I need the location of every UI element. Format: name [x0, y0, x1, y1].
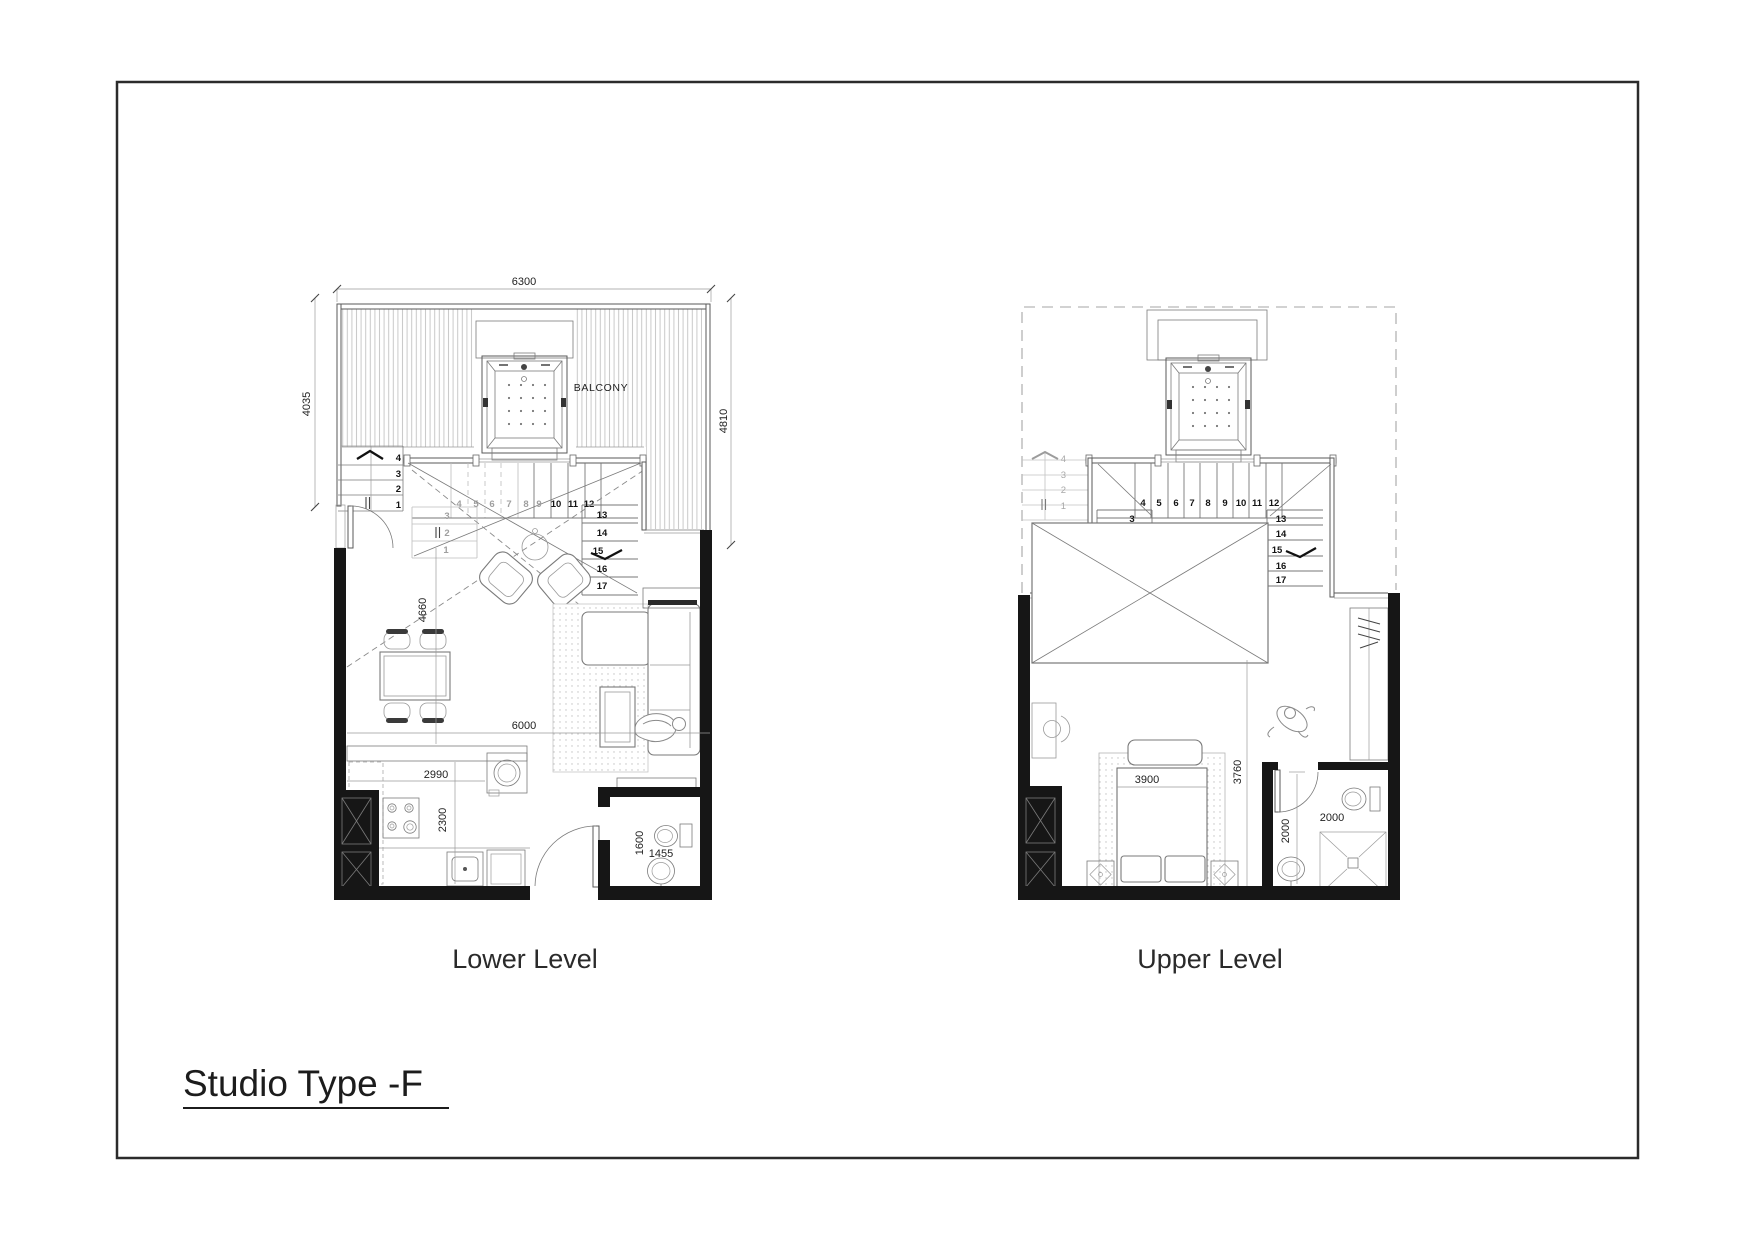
balcony-door-recess: [476, 321, 573, 358]
tv-console: [643, 588, 702, 608]
upper-level-caption: Upper Level: [1137, 944, 1283, 974]
dim-label: 2000: [1320, 812, 1344, 824]
stair-number: 9: [536, 499, 541, 510]
dim-label: 6300: [512, 276, 536, 288]
stair-number: 10: [551, 499, 562, 510]
balcony-steps: 1 2 3 4: [338, 446, 403, 511]
balcony-room-label: BALCONY: [574, 382, 628, 394]
stair-number: 4: [396, 453, 402, 464]
dim-label: 4810: [718, 409, 730, 433]
stair-number: 11: [1252, 498, 1263, 509]
toilet: [1342, 787, 1380, 811]
stair-number: 3: [1061, 470, 1066, 481]
bathroom-door: [1275, 770, 1318, 812]
dim-label: 2300: [437, 808, 449, 832]
stair-number: 17: [597, 581, 608, 592]
stair-number: 17: [1276, 575, 1287, 586]
bathroom-sink: [1278, 857, 1305, 888]
stair-number: 7: [506, 499, 511, 510]
void-open-to-below: [1032, 523, 1268, 663]
stair-up-arrow: [357, 451, 383, 459]
stair-number: 2: [444, 528, 449, 539]
stair-number: 9: [1222, 498, 1227, 509]
drawing-sheet: BALCONY 1 2 3 4: [0, 0, 1755, 1240]
pillow: [1121, 856, 1161, 882]
stair-number: 13: [1276, 514, 1287, 525]
wardrobe: [1350, 608, 1388, 760]
title-block: Studio Type -F: [183, 1063, 449, 1108]
lower-level-plan: BALCONY 1 2 3 4: [301, 276, 735, 974]
stair-number: 11: [568, 499, 579, 510]
sheet-title: Studio Type -F: [183, 1063, 423, 1104]
dim-label: 4035: [301, 392, 313, 416]
dim-label: 4660: [417, 598, 429, 622]
washing-machine: [487, 753, 527, 796]
stair-number: 3: [396, 469, 401, 480]
dim-label: 6000: [512, 720, 536, 732]
dim-label: 1600: [634, 831, 646, 855]
bathroom-sink: [648, 858, 675, 890]
stair-number: 8: [523, 499, 528, 510]
balcony-steps-ghost: 1 2 3 4: [1022, 452, 1088, 520]
kitchen-sink: [447, 852, 483, 886]
stair-number: 2: [1061, 485, 1066, 496]
bathroom-door: [535, 826, 599, 887]
dim-label: 2000: [1280, 819, 1292, 843]
stair-number: 14: [597, 528, 608, 539]
shower: [1320, 832, 1386, 894]
bed: [1087, 740, 1238, 890]
stair-number: 16: [597, 564, 608, 575]
jacuzzi: [482, 353, 567, 460]
stair-number: 10: [1236, 498, 1247, 509]
stair-number: 2: [396, 484, 401, 495]
stair-number: 16: [1276, 561, 1287, 572]
stair-number: 1: [443, 545, 449, 556]
person-figure: [1268, 701, 1315, 737]
floor-plan-canvas: BALCONY 1 2 3 4: [0, 0, 1755, 1240]
stair-number: 13: [597, 510, 608, 521]
armchair: [476, 548, 537, 608]
stair-number: 6: [489, 499, 494, 510]
kitchen-counter: [347, 746, 527, 761]
dim-label: 3760: [1232, 760, 1244, 784]
stair-number: 15: [1272, 545, 1283, 556]
upper-level-plan: 1 2 3 4: [1018, 307, 1400, 974]
east-wall: [706, 304, 710, 532]
dim-label: 3900: [1135, 774, 1159, 786]
stair-number: 7: [1189, 498, 1194, 509]
stair-number: 3: [444, 511, 449, 522]
stair-number: 15: [593, 546, 604, 557]
lower-level-caption: Lower Level: [452, 944, 598, 974]
balcony-door-recess: [1147, 310, 1267, 360]
stair-number: 8: [1205, 498, 1210, 509]
balcony-north-wall: [337, 304, 710, 309]
stair-number: 6: [1173, 498, 1178, 509]
west-wall: [337, 304, 341, 506]
refrigerator: [487, 850, 525, 888]
stair-number: 14: [1276, 529, 1287, 540]
stair-number: 1: [1061, 501, 1066, 512]
coffee-table: [600, 687, 635, 747]
stair-number: 4: [1140, 498, 1146, 509]
stair-number: 1: [396, 500, 402, 511]
side-table: [522, 534, 548, 560]
toilet: [655, 824, 693, 847]
jacuzzi: [1166, 355, 1251, 462]
cooktop: [383, 798, 419, 838]
stair-number: 4: [1061, 454, 1066, 465]
bed-bench: [1128, 740, 1202, 765]
pillow: [1165, 856, 1205, 882]
stair-number: 5: [473, 499, 479, 510]
stair-number: 5: [1156, 498, 1162, 509]
living-furniture: [380, 529, 702, 792]
stair-number: 12: [1269, 498, 1280, 509]
dining-table: [380, 629, 450, 723]
dim-label: 2990: [424, 769, 448, 781]
entry-door: [336, 505, 393, 548]
desk: [1032, 703, 1070, 758]
dim-label: 1455: [649, 848, 673, 860]
